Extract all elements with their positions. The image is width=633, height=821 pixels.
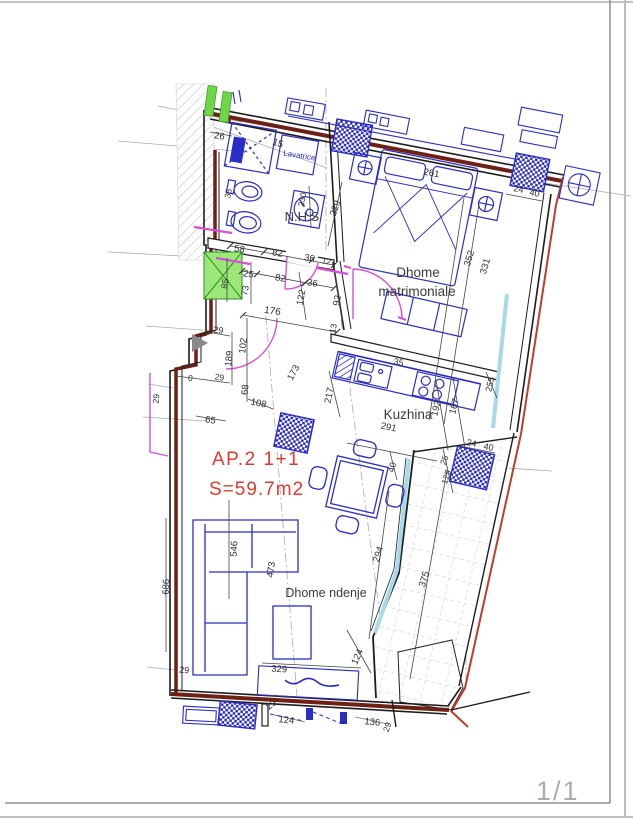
- dim-12: 12: [321, 255, 332, 266]
- dim-102: 102: [237, 337, 250, 354]
- dim-294: 294: [371, 545, 386, 563]
- dim-82a: 82: [271, 247, 283, 260]
- toilet: [225, 209, 262, 236]
- dim-24a: 24: [513, 183, 525, 195]
- drawing-sheet: N.H.SDhomematrimonialeKuzhinaDhome ndenj…: [0, 0, 633, 821]
- dim-217: 217: [323, 387, 337, 405]
- dim-36b: 36: [306, 277, 318, 290]
- sheet-number: 1/1: [536, 776, 580, 807]
- room-label-bedroom-line1: Dhome: [396, 265, 440, 280]
- floor-plan-canvas: N.H.SDhomematrimonialeKuzhinaDhome ndenj…: [0, 0, 633, 821]
- room-label-kitchen: Kuzhina: [384, 407, 433, 422]
- dim-329: 329: [271, 663, 288, 675]
- dining-table: [300, 430, 414, 543]
- room-label-nhs: N.H.S: [285, 209, 320, 224]
- page-frame: [0, 0, 633, 818]
- dim-352: 352: [462, 249, 477, 267]
- dim-230: 230: [296, 191, 309, 207]
- room-label-living: Dhome ndenje: [285, 586, 366, 600]
- room-label-bedroom-line2: matrimoniale: [378, 284, 455, 299]
- dim-167: 167: [447, 397, 462, 415]
- dim-108: 108: [250, 397, 268, 411]
- dim-35-counter: 35: [393, 356, 405, 368]
- dim-68: 68: [239, 384, 251, 396]
- dim-124a: 124: [349, 648, 365, 667]
- dim-29b: 29: [214, 371, 225, 382]
- dim-546: 546: [229, 541, 241, 557]
- fixture-label-lavatrice: Lavatrice: [283, 149, 317, 163]
- nightstand-right: [469, 187, 502, 220]
- dim-65: 65: [204, 414, 216, 426]
- dim-40c: 40: [483, 441, 495, 453]
- dim-40a: 40: [529, 187, 541, 199]
- dim-136: 136: [364, 716, 381, 729]
- dim-13: 13: [327, 323, 339, 334]
- dim-473: 473: [265, 561, 278, 578]
- dim-82b: 82: [274, 272, 286, 285]
- dim-36a: 36: [303, 252, 315, 265]
- dim-29f: 29: [381, 721, 394, 734]
- dim-29c: 29: [151, 393, 162, 404]
- dim-122: 122: [295, 289, 309, 307]
- dim-24b: 24: [466, 437, 478, 449]
- dim-85: 85: [219, 278, 231, 290]
- dim-35-bidet: 35: [222, 187, 234, 199]
- dim-173: 173: [285, 363, 302, 382]
- dimension-lines: [166, 132, 542, 724]
- dim-686: 686: [161, 579, 173, 595]
- apartment-label: AP.2 1+1: [212, 449, 300, 471]
- sofa: [193, 520, 298, 675]
- dim-189: 189: [223, 350, 236, 367]
- dim-124b: 124: [278, 714, 295, 727]
- dim-291: 291: [380, 421, 398, 435]
- dim-40b: 40: [386, 461, 398, 473]
- side-table: [273, 606, 311, 659]
- dim-261: 261: [423, 167, 441, 181]
- dim-29a: 29: [213, 324, 224, 335]
- dim-29d: 29: [179, 665, 190, 676]
- apartment-area-label: S=59.7m2: [209, 479, 304, 501]
- dim-73: 73: [239, 285, 251, 297]
- dim-331: 331: [478, 257, 493, 275]
- dim-25a: 25: [242, 268, 254, 281]
- dim-92: 92: [331, 294, 344, 306]
- dim-58: 58: [233, 243, 245, 256]
- column-base-marker: [559, 166, 600, 206]
- dim-255: 255: [483, 376, 496, 393]
- dim-26: 26: [213, 130, 225, 143]
